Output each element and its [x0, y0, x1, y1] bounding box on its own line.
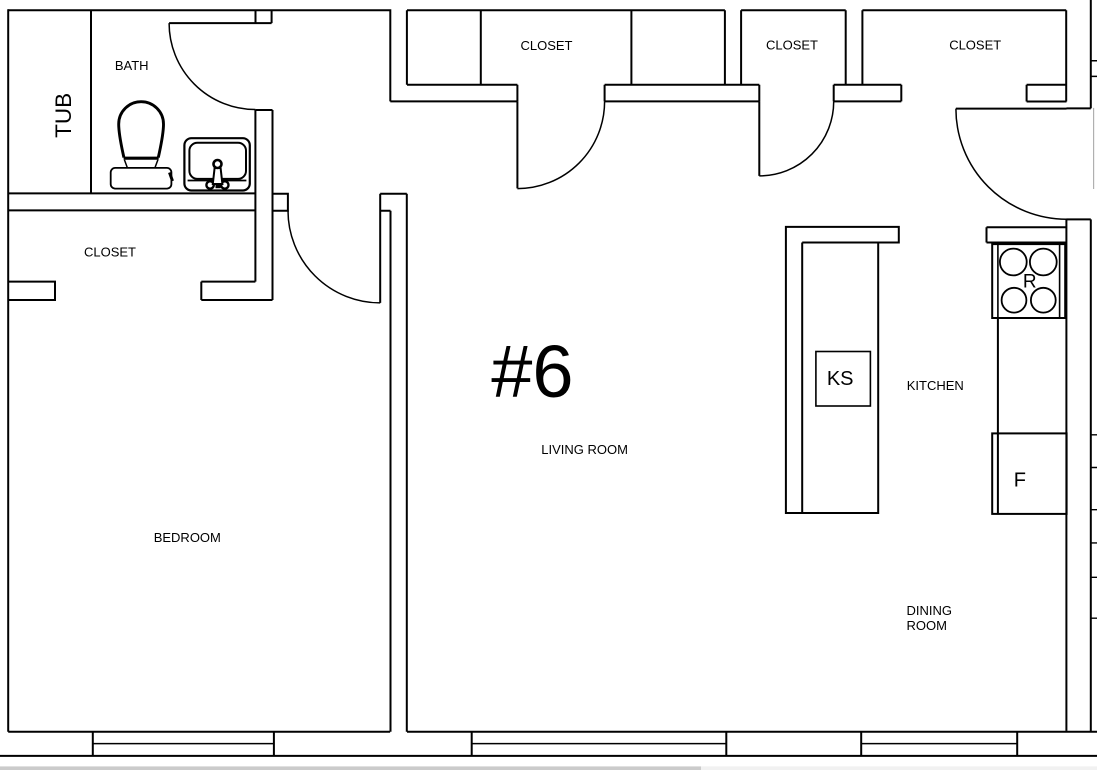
- svg-text:CLOSET: CLOSET: [949, 38, 1001, 53]
- svg-text:TUB: TUB: [51, 93, 76, 138]
- svg-text:LIVING ROOM: LIVING ROOM: [541, 442, 628, 457]
- svg-text:KITCHEN: KITCHEN: [907, 378, 964, 393]
- svg-text:ROOM: ROOM: [907, 618, 947, 633]
- svg-text:#6: #6: [491, 330, 573, 413]
- svg-text:KS: KS: [827, 368, 854, 390]
- svg-text:BATH: BATH: [115, 58, 149, 73]
- svg-text:BEDROOM: BEDROOM: [154, 530, 221, 545]
- svg-text:R: R: [1023, 272, 1037, 293]
- svg-text:CLOSET: CLOSET: [520, 38, 572, 53]
- svg-text:DINING: DINING: [907, 603, 953, 618]
- svg-text:CLOSET: CLOSET: [84, 244, 136, 259]
- svg-text:F: F: [1014, 469, 1026, 491]
- svg-text:CLOSET: CLOSET: [766, 38, 818, 53]
